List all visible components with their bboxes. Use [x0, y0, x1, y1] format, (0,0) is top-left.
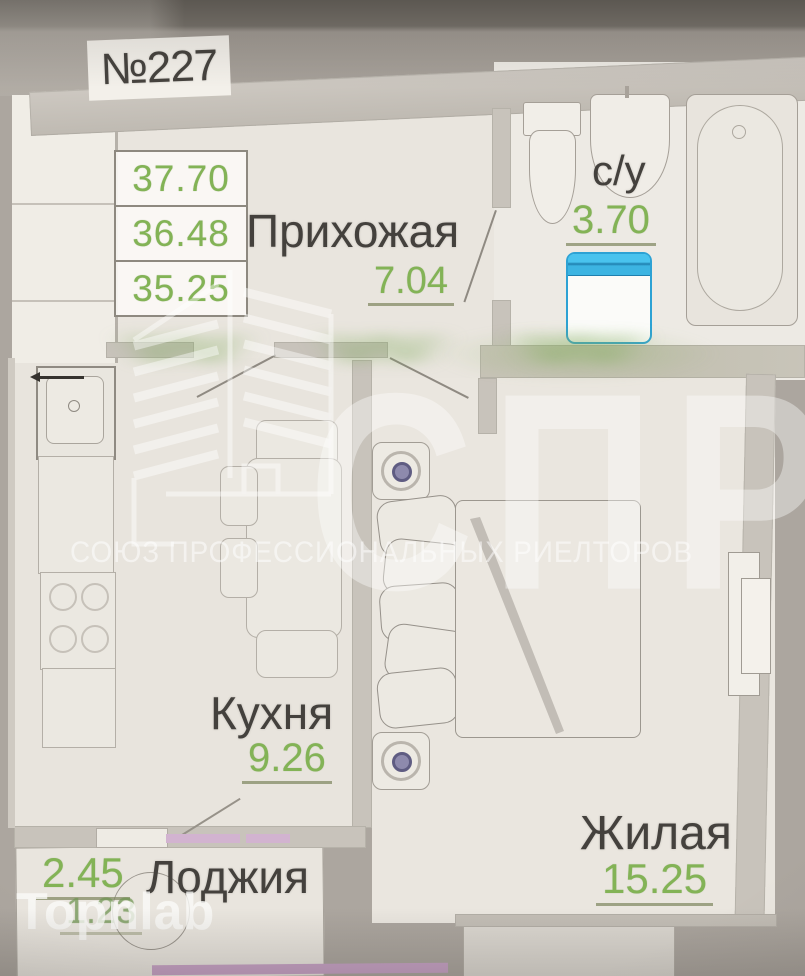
kitchen-sink-drain-icon [68, 400, 80, 412]
agency-full-watermark: СОЮЗ ПРОФЕССИОНАЛЬНЫХ РИЕЛТОРОВ [70, 538, 693, 568]
crm-brand-watermark: Topnlab [16, 886, 214, 938]
faucet-arrow-head [30, 372, 40, 382]
balcony-window-strip [246, 834, 290, 843]
area-total: 37.70 [114, 150, 248, 207]
kitchen-west-edge [8, 358, 15, 828]
sink-tap-icon [625, 86, 629, 98]
hallway-area: 7.04 [368, 262, 454, 306]
kitchen-area: 9.26 [242, 738, 332, 784]
living-area: 15.25 [596, 858, 713, 906]
unit-number: №227 [100, 41, 218, 95]
wardrobe-item-icon [375, 666, 460, 730]
living-south-wall [455, 914, 777, 927]
burner-icon [81, 583, 109, 611]
kitchen-label: Кухня [210, 690, 333, 736]
stove-icon [40, 572, 116, 670]
agency-abbr-watermark: СПР [308, 352, 805, 633]
balcony-door-panel [96, 828, 168, 848]
bathtub-icon [686, 94, 798, 326]
kitchen-sink-icon [36, 366, 116, 460]
hall-closet [12, 95, 118, 363]
lower-bay [463, 921, 675, 976]
stool-icon [372, 732, 430, 790]
burner-icon [49, 583, 77, 611]
closet-shelf-line [12, 203, 115, 205]
bathtub-drain-icon [732, 125, 746, 139]
unit-number-box: №227 [87, 35, 231, 100]
burner-icon [81, 625, 109, 653]
closet-shelf-line [12, 300, 115, 302]
bathroom-area: 3.70 [566, 200, 656, 246]
bathroom-label: с/у [592, 150, 646, 192]
burner-icon [49, 625, 77, 653]
living-label: Жилая [580, 810, 732, 858]
loggia-glazing-strip [152, 963, 448, 976]
kitchen-counter [42, 668, 116, 748]
hall-bath-wall-upper [492, 108, 511, 208]
floorplan-photo: №227 37.70 36.48 35.25 [0, 0, 805, 976]
balcony-window-strip [166, 834, 240, 843]
faucet-arrow-icon [40, 376, 84, 379]
washing-machine-top [568, 254, 650, 276]
